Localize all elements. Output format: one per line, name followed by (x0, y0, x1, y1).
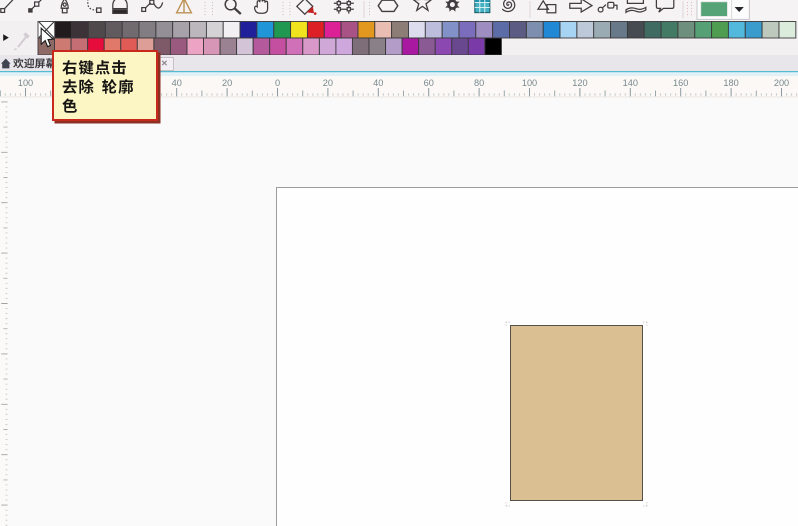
svg-text:120: 120 (572, 78, 587, 88)
svg-text:40: 40 (373, 78, 383, 88)
svg-text:200: 200 (774, 78, 789, 88)
svg-text:40: 40 (172, 78, 182, 88)
svg-text:140: 140 (623, 78, 638, 88)
svg-text:20: 20 (323, 78, 333, 88)
svg-text:60: 60 (424, 78, 434, 88)
svg-text:100: 100 (18, 78, 33, 88)
svg-text:180: 180 (723, 78, 738, 88)
svg-text:80: 80 (474, 78, 484, 88)
svg-text:0: 0 (275, 78, 280, 88)
svg-text:20: 20 (222, 78, 232, 88)
svg-text:100: 100 (522, 78, 537, 88)
svg-text:160: 160 (673, 78, 688, 88)
